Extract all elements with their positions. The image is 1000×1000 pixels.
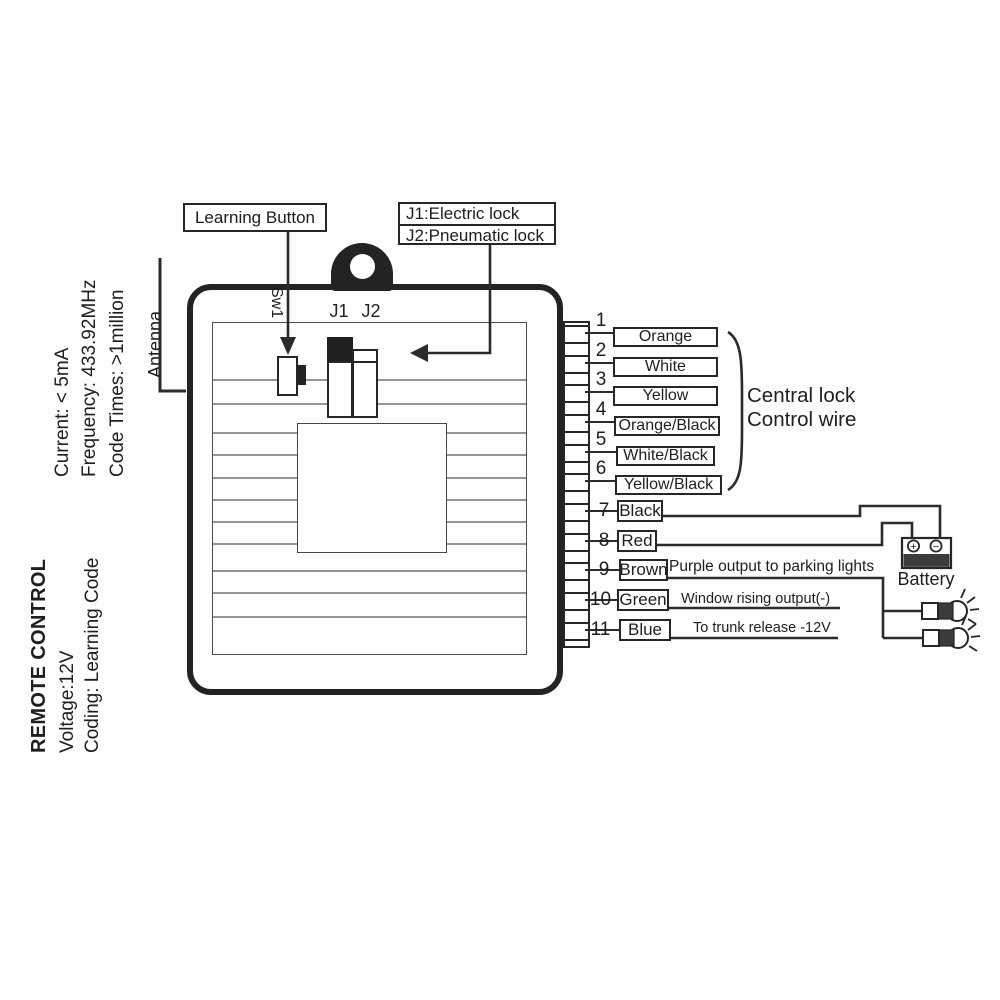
connector-pin-divider	[565, 372, 588, 374]
connector-pin-divider	[565, 444, 588, 446]
wire-group-line1: Central lock	[747, 384, 856, 408]
wiring-diagram: REMOTE CONTROL Voltage:12V Coding: Learn…	[0, 0, 1000, 1000]
wire-color-label: Yellow/Black	[615, 475, 722, 495]
wire-number: 5	[590, 430, 612, 450]
wire-color-label: Blue	[619, 619, 671, 641]
antenna-label: Antenna	[145, 311, 166, 378]
connector-pin-divider	[565, 490, 588, 492]
spec-voltage: Voltage:12V	[57, 651, 79, 753]
jumper-j1-socket[interactable]	[327, 361, 353, 418]
j1-label: J1	[327, 301, 351, 322]
parking-lamp-icon-1	[922, 589, 979, 624]
wire-group-line2: Control wire	[747, 408, 856, 432]
parking-lamp-icon-2	[923, 616, 980, 651]
wire-number: 11	[585, 619, 616, 641]
wire-color-label: Orange/Black	[614, 416, 720, 436]
jumper-j2-top-cell	[354, 351, 376, 363]
ic-chip	[297, 423, 447, 553]
wire-note: Window rising output(-)	[681, 591, 830, 607]
wire-number: 2	[590, 341, 612, 361]
wire7-to-battery-negative	[663, 506, 940, 537]
battery-plus-symbol: +	[910, 541, 916, 553]
mounting-hole-icon	[350, 254, 375, 279]
connector-pin-divider	[565, 401, 588, 403]
connector-pin-divider	[565, 342, 588, 344]
wire-number: 7	[592, 500, 616, 522]
connector-pin-divider	[565, 325, 588, 327]
switch-label: Sw1	[267, 287, 285, 318]
wire-color-label: Orange	[613, 327, 718, 347]
lamp1-rays	[961, 589, 979, 624]
j2-label: J2	[359, 301, 383, 322]
wire-number: 1	[590, 311, 612, 331]
battery-negative-terminal-icon	[930, 540, 941, 551]
diagram-title: REMOTE CONTROL	[27, 559, 51, 753]
learning-switch-sw1[interactable]	[277, 356, 298, 396]
wire-color-label: White/Black	[616, 446, 715, 466]
battery-positive-terminal-icon	[908, 540, 919, 551]
connector-pin-divider	[565, 384, 588, 386]
connector-pin-divider	[565, 503, 588, 505]
connector-pin-divider	[565, 461, 588, 463]
connector-pin-divider	[565, 473, 588, 475]
connector-pin-divider	[565, 520, 588, 522]
spec-coding: Coding: Learning Code	[82, 558, 104, 753]
wire-number: 9	[592, 559, 616, 581]
connector-pin-divider	[565, 533, 588, 535]
wire-group-label: Central lock Control wire	[747, 384, 856, 431]
group-bracket	[728, 332, 742, 490]
connector-pin-divider	[565, 431, 588, 433]
connector-pin-divider	[565, 355, 588, 357]
spec-code-times: Code Times: >1million	[107, 290, 129, 477]
wire-color-label: Red	[617, 530, 657, 552]
wire-color-label: Yellow	[613, 386, 718, 406]
wire-number: 3	[590, 370, 612, 390]
jumper-info-callout: J1:Electric lock J2:Pneumatic lock	[398, 202, 556, 245]
learning-button-callout: Learning Button	[183, 203, 327, 232]
wire-color-label: White	[613, 357, 718, 377]
wire-number: 8	[592, 530, 616, 552]
connector-pin-divider	[565, 562, 588, 564]
battery-minus-symbol: −	[933, 541, 939, 553]
wire-note: Purple output to parking lights	[669, 558, 874, 576]
connector-pin-divider	[565, 414, 588, 416]
battery-label: Battery	[894, 569, 958, 590]
wire-color-label: Brown	[619, 559, 668, 581]
wire-number: 4	[590, 400, 612, 420]
spec-frequency: Frequency: 433.92MHz	[79, 280, 101, 478]
lamp2-rays	[962, 616, 980, 651]
wire-number: 6	[590, 459, 612, 479]
learning-button-callout-text: Learning Button	[195, 208, 315, 228]
jumper-j1-cap[interactable]	[327, 337, 353, 363]
wire-color-label: Black	[617, 500, 663, 522]
wire-note: To trunk release -12V	[693, 620, 831, 636]
connector-pin-divider	[565, 550, 588, 552]
wire8-to-battery-positive	[657, 523, 912, 545]
spec-current: Current: < 5mA	[52, 348, 74, 477]
wire-color-label: Green	[617, 589, 669, 611]
battery-icon: + −	[902, 538, 951, 568]
jumper-info-line2: J2:Pneumatic lock	[400, 226, 554, 245]
connector-pin-divider	[565, 579, 588, 581]
jumper-info-line1: J1:Electric lock	[400, 204, 554, 226]
wire-number: 10	[585, 589, 616, 611]
jumper-j2-socket[interactable]	[352, 349, 378, 418]
